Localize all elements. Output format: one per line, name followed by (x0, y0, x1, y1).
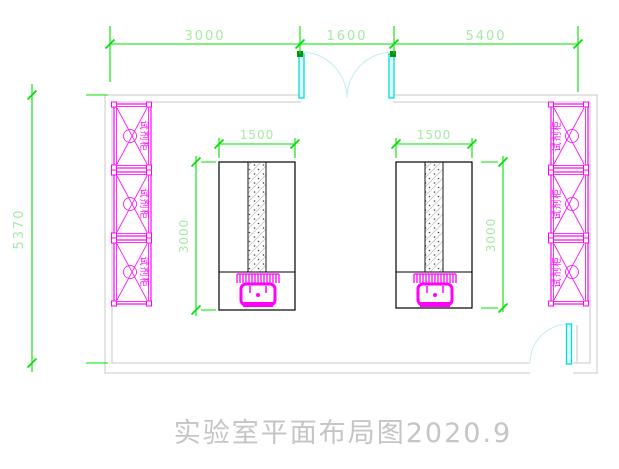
dim-label-bench-height: 3000 (484, 218, 498, 253)
door-swing-arc-right (347, 52, 393, 98)
cad-floor-plan: 试剂柜 试剂柜 试剂柜 (0, 0, 619, 469)
door-leaf (567, 324, 572, 364)
sink-base (243, 302, 273, 307)
dim-label-top-left: 3000 (184, 29, 225, 44)
cabinet-label: 试剂柜 (138, 188, 150, 220)
dimension-bench-right-width: 1500 (392, 128, 477, 158)
reagent-cabinets-left: 试剂柜 试剂柜 试剂柜 (112, 102, 152, 306)
double-door-top (297, 51, 396, 98)
sink-comb (414, 274, 456, 283)
dimension-room-height: 5370 (12, 84, 108, 372)
dimension-bench-left-height: 3000 (177, 156, 216, 316)
dimension-bench-right-height: 3000 (481, 156, 508, 313)
reagent-cabinet: 试剂柜 (549, 170, 589, 238)
dim-label-room-height: 5370 (12, 208, 27, 249)
dim-label-bench-width: 1500 (417, 128, 452, 142)
cabinet-label: 试剂柜 (551, 120, 563, 152)
bench-center-strip (248, 162, 266, 272)
sink-comb (237, 274, 279, 283)
door-leaf-left (299, 54, 304, 98)
reagent-cabinet: 试剂柜 (549, 238, 589, 306)
reagent-cabinets-right: 试剂柜 试剂柜 试剂柜 (549, 102, 589, 306)
reagent-cabinet: 试剂柜 (112, 170, 152, 238)
cabinet-label: 试剂柜 (551, 256, 563, 288)
dim-label-top-right: 5400 (465, 29, 506, 44)
reagent-cabinet: 试剂柜 (112, 102, 152, 170)
dim-label-bench-height: 3000 (177, 219, 191, 254)
dim-label-bench-width: 1500 (240, 128, 275, 142)
door-swing-arc-left (301, 52, 347, 98)
cabinet-label: 试剂柜 (138, 256, 150, 288)
sink-drain (256, 293, 260, 297)
bench-center-strip (425, 162, 443, 272)
sink-base (420, 302, 450, 307)
drawing-title: 实验室平面布局图2020.9 (174, 418, 512, 449)
door-swing-arc (530, 324, 569, 363)
cabinet-label: 试剂柜 (551, 188, 563, 220)
dim-label-top-middle: 1600 (326, 29, 367, 44)
reagent-cabinet: 试剂柜 (549, 102, 589, 170)
lab-bench-left (219, 162, 295, 310)
reagent-cabinet: 试剂柜 (112, 238, 152, 306)
door-hinge-point-right (390, 51, 396, 57)
floor-plan-canvas: 试剂柜 试剂柜 试剂柜 (0, 0, 619, 469)
dimension-bench-left-width: 1500 (215, 128, 300, 158)
lab-bench-right (396, 162, 472, 308)
dimensions: 3000 1600 5400 5370 1500 3000 1500 (12, 26, 583, 372)
sink-drain (433, 293, 437, 297)
door-leaf-right (389, 54, 394, 98)
cabinet-label: 试剂柜 (138, 120, 150, 152)
